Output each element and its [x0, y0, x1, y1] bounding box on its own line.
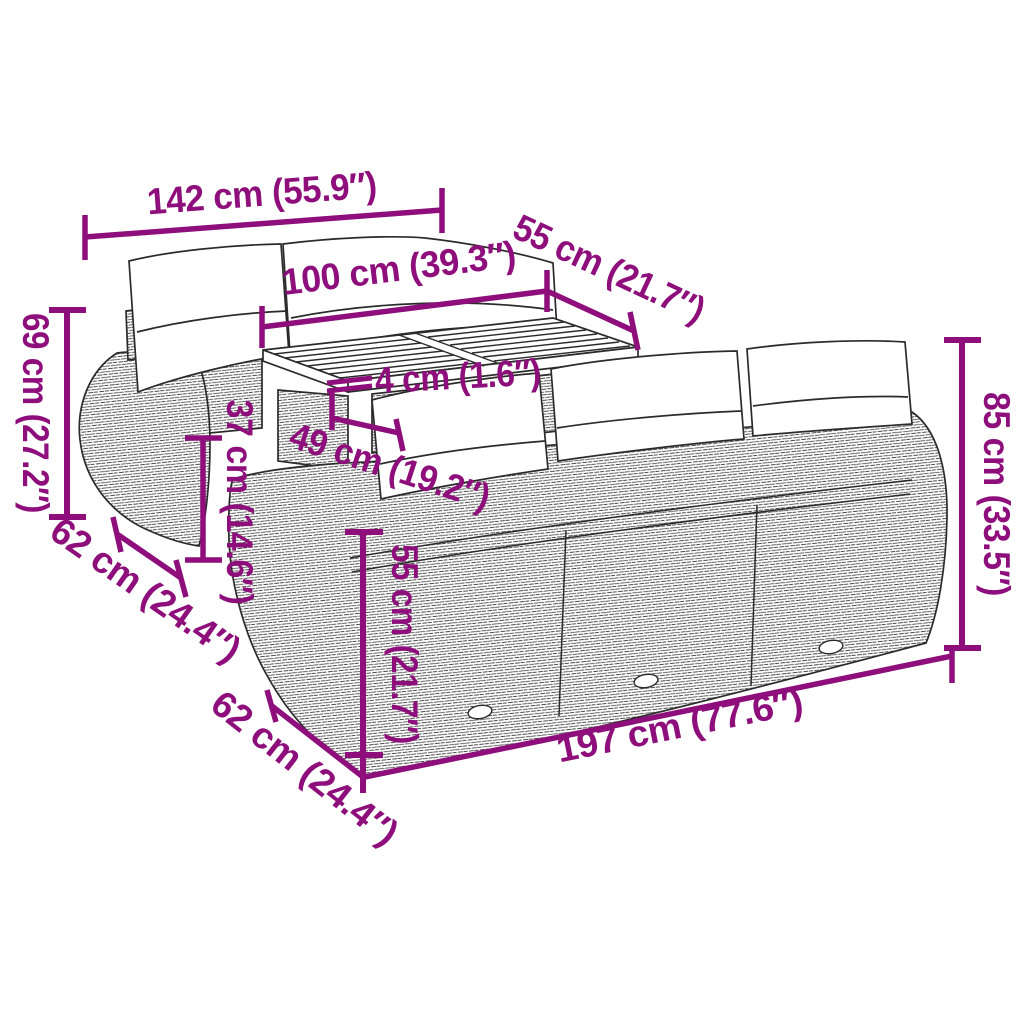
diagram-canvas: 142 cm (55.9″) 100 cm (39.3″) 55 cm (21.…	[0, 0, 1024, 1024]
dim-label-back-sofa-width: 142 cm (55.9″)	[146, 164, 378, 222]
dim-label-seat-height: 37 cm (14.6″)	[219, 400, 260, 605]
dim-label-front-sofa-height: 85 cm (33.5″)	[976, 392, 1017, 596]
back-cushion-left	[129, 244, 289, 392]
furniture-artwork	[79, 237, 947, 778]
dim-label-back-sofa-height: 69 cm (27.2″)	[15, 313, 56, 513]
dimension-line	[85, 210, 442, 237]
dim-label-module-depth-back: 62 cm (24.4″)	[43, 509, 248, 670]
front-cushion-right	[747, 341, 912, 436]
dim-label-sofa-side-height: 55 cm (21.7″)	[384, 544, 425, 744]
product-dimension-diagram: 142 cm (55.9″) 100 cm (39.3″) 55 cm (21.…	[0, 0, 1024, 1024]
dim-label-tabletop-thickness: 4 cm (1.6″)	[374, 351, 542, 401]
dimension-front-sofa-height	[944, 340, 981, 648]
